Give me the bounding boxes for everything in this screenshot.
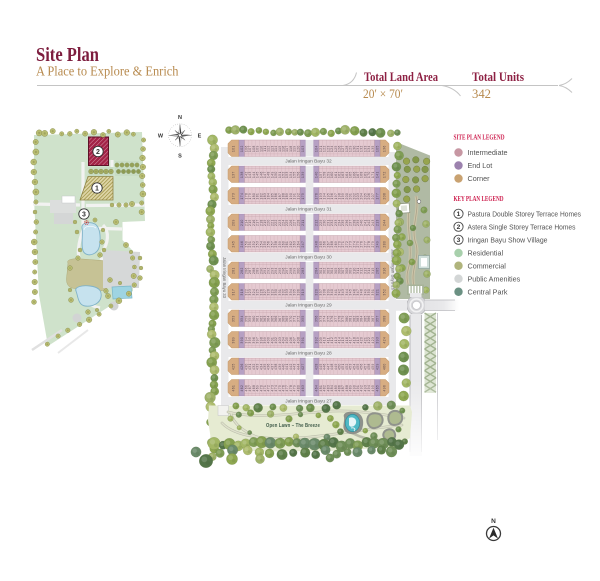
svg-text:408: 408 xyxy=(296,337,300,344)
svg-text:N: N xyxy=(491,518,496,525)
svg-text:387: 387 xyxy=(371,315,375,322)
svg-text:244: 244 xyxy=(383,219,387,226)
svg-text:1: 1 xyxy=(95,186,99,193)
svg-text:139: 139 xyxy=(301,171,305,178)
svg-text:Pastura Double Storey Terrace: Pastura Double Storey Terrace Homes xyxy=(468,209,582,218)
svg-text:249: 249 xyxy=(375,241,379,248)
svg-text:243: 243 xyxy=(371,219,375,226)
svg-text:Total Units: Total Units xyxy=(472,70,524,84)
svg-text:423: 423 xyxy=(371,337,375,344)
svg-text:357: 357 xyxy=(375,315,379,322)
svg-text:Corner: Corner xyxy=(468,174,491,183)
svg-text:247: 247 xyxy=(301,241,305,248)
svg-text:20′ × 70′: 20′ × 70′ xyxy=(363,87,403,101)
svg-text:Jalan Iringan Bayu 28: Jalan Iringan Bayu 28 xyxy=(285,351,332,357)
svg-text:101: 101 xyxy=(232,145,236,152)
svg-text:Total Land Area: Total Land Area xyxy=(364,70,439,84)
svg-text:426: 426 xyxy=(240,363,244,370)
svg-text:392: 392 xyxy=(314,337,318,344)
svg-text:S: S xyxy=(178,153,182,159)
svg-text:462: 462 xyxy=(240,385,244,392)
svg-text:138: 138 xyxy=(240,171,244,178)
svg-text:A Place to Explore & Enrich: A Place to Explore & Enrich xyxy=(36,65,179,80)
svg-text:W: W xyxy=(158,133,164,139)
svg-text:Jalan Iringan Bayu 30: Jalan Iringan Bayu 30 xyxy=(285,255,332,261)
svg-text:Residential: Residential xyxy=(468,249,504,258)
svg-text:496: 496 xyxy=(383,385,387,392)
svg-text:2: 2 xyxy=(96,149,100,156)
svg-text:336: 336 xyxy=(296,289,300,296)
svg-text:300: 300 xyxy=(296,267,300,274)
svg-text:Jalan Iringan Bayu 31: Jalan Iringan Bayu 31 xyxy=(285,207,332,213)
svg-text:495: 495 xyxy=(371,385,375,392)
svg-text:156: 156 xyxy=(296,171,300,178)
svg-text:140: 140 xyxy=(314,171,318,178)
svg-text:356: 356 xyxy=(314,315,318,322)
svg-text:264: 264 xyxy=(296,241,300,248)
svg-text:355: 355 xyxy=(301,315,305,322)
svg-text:136: 136 xyxy=(383,145,387,152)
svg-text:465: 465 xyxy=(375,385,379,392)
svg-text:209: 209 xyxy=(232,219,236,226)
svg-text:208: 208 xyxy=(383,193,387,200)
svg-text:321: 321 xyxy=(375,289,379,296)
svg-text:192: 192 xyxy=(296,193,300,200)
svg-text:Jalan Iringan Bayu 27: Jalan Iringan Bayu 27 xyxy=(285,399,332,405)
svg-text:Central Park: Central Park xyxy=(468,287,508,296)
svg-text:320: 320 xyxy=(314,289,318,296)
svg-text:372: 372 xyxy=(296,315,300,322)
svg-text:352: 352 xyxy=(383,289,387,296)
svg-text:N: N xyxy=(178,115,182,121)
svg-text:282: 282 xyxy=(240,267,244,274)
svg-text:171: 171 xyxy=(371,171,375,178)
svg-text:427: 427 xyxy=(301,363,305,370)
svg-text:389: 389 xyxy=(232,337,236,344)
svg-text:480: 480 xyxy=(296,385,300,392)
svg-text:429: 429 xyxy=(375,363,379,370)
svg-text:353: 353 xyxy=(232,315,236,322)
svg-text:279: 279 xyxy=(371,241,375,248)
svg-text:393: 393 xyxy=(375,337,379,344)
svg-text:SITE PLAN LEGEND: SITE PLAN LEGEND xyxy=(454,134,505,142)
svg-text:103: 103 xyxy=(301,145,305,152)
svg-text:284: 284 xyxy=(314,267,318,274)
svg-text:3: 3 xyxy=(457,237,461,244)
svg-text:2: 2 xyxy=(457,224,461,231)
svg-text:285: 285 xyxy=(375,267,379,274)
svg-text:173: 173 xyxy=(232,193,236,200)
svg-text:105: 105 xyxy=(375,145,379,152)
svg-text:246: 246 xyxy=(240,241,244,248)
svg-text:102: 102 xyxy=(240,145,244,152)
svg-text:463: 463 xyxy=(301,385,305,392)
svg-text:281: 281 xyxy=(232,267,236,274)
svg-text:424: 424 xyxy=(383,337,387,344)
svg-text:176: 176 xyxy=(314,193,318,200)
svg-text:175: 175 xyxy=(301,193,305,200)
svg-text:444: 444 xyxy=(296,363,300,370)
svg-text:207: 207 xyxy=(371,193,375,200)
svg-text:319: 319 xyxy=(301,289,305,296)
svg-text:Jalan Iringan Bayu 29: Jalan Iringan Bayu 29 xyxy=(285,303,332,309)
svg-text:Intermediate: Intermediate xyxy=(468,148,508,157)
svg-text:461: 461 xyxy=(232,385,236,392)
svg-text:388: 388 xyxy=(383,315,387,322)
svg-text:210: 210 xyxy=(240,219,244,226)
svg-text:213: 213 xyxy=(375,219,379,226)
svg-text:248: 248 xyxy=(314,241,318,248)
svg-text:E: E xyxy=(198,133,202,139)
svg-text:Astera Single Storey Terrace H: Astera Single Storey Terrace Homes xyxy=(468,222,576,231)
svg-text:390: 390 xyxy=(240,337,244,344)
svg-text:104: 104 xyxy=(314,145,318,152)
svg-text:428: 428 xyxy=(314,363,318,370)
svg-text:315: 315 xyxy=(371,267,375,274)
svg-text:316: 316 xyxy=(383,267,387,274)
svg-text:120: 120 xyxy=(296,145,300,152)
svg-text:Jalan Iringan Bayu 33: Jalan Iringan Bayu 33 xyxy=(221,257,227,298)
svg-text:Site Plan: Site Plan xyxy=(36,44,99,66)
svg-text:280: 280 xyxy=(383,241,387,248)
svg-text:245: 245 xyxy=(232,241,236,248)
svg-text:212: 212 xyxy=(314,219,318,226)
svg-text:391: 391 xyxy=(301,337,305,344)
svg-text:459: 459 xyxy=(371,363,375,370)
svg-text:137: 137 xyxy=(232,171,236,178)
svg-text:464: 464 xyxy=(314,385,318,392)
svg-text:Open Lawn – The Breeze: Open Lawn – The Breeze xyxy=(266,423,320,429)
svg-text:174: 174 xyxy=(240,193,244,200)
svg-text:211: 211 xyxy=(301,219,305,226)
svg-text:KEY PLAN LEGEND: KEY PLAN LEGEND xyxy=(454,195,504,203)
svg-text:Commercial: Commercial xyxy=(468,261,507,270)
svg-text:317: 317 xyxy=(232,289,236,296)
svg-text:Iringan Bayu Show Village: Iringan Bayu Show Village xyxy=(468,235,548,244)
svg-text:End Lot: End Lot xyxy=(468,161,493,170)
svg-text:Public Amenities: Public Amenities xyxy=(468,274,521,283)
svg-text:177: 177 xyxy=(375,193,379,200)
svg-text:172: 172 xyxy=(383,171,387,178)
svg-text:135: 135 xyxy=(371,145,375,152)
svg-text:351: 351 xyxy=(371,289,375,296)
svg-text:283: 283 xyxy=(301,267,305,274)
svg-text:460: 460 xyxy=(383,363,387,370)
svg-text:3: 3 xyxy=(82,212,86,219)
svg-text:354: 354 xyxy=(240,315,244,322)
svg-text:342: 342 xyxy=(472,87,491,101)
svg-text:228: 228 xyxy=(296,219,300,226)
svg-text:1: 1 xyxy=(457,211,461,218)
svg-text:318: 318 xyxy=(240,289,244,296)
svg-text:141: 141 xyxy=(375,171,379,178)
svg-text:Jalan Iringan Bayu 32: Jalan Iringan Bayu 32 xyxy=(285,159,332,165)
svg-text:425: 425 xyxy=(232,363,236,370)
